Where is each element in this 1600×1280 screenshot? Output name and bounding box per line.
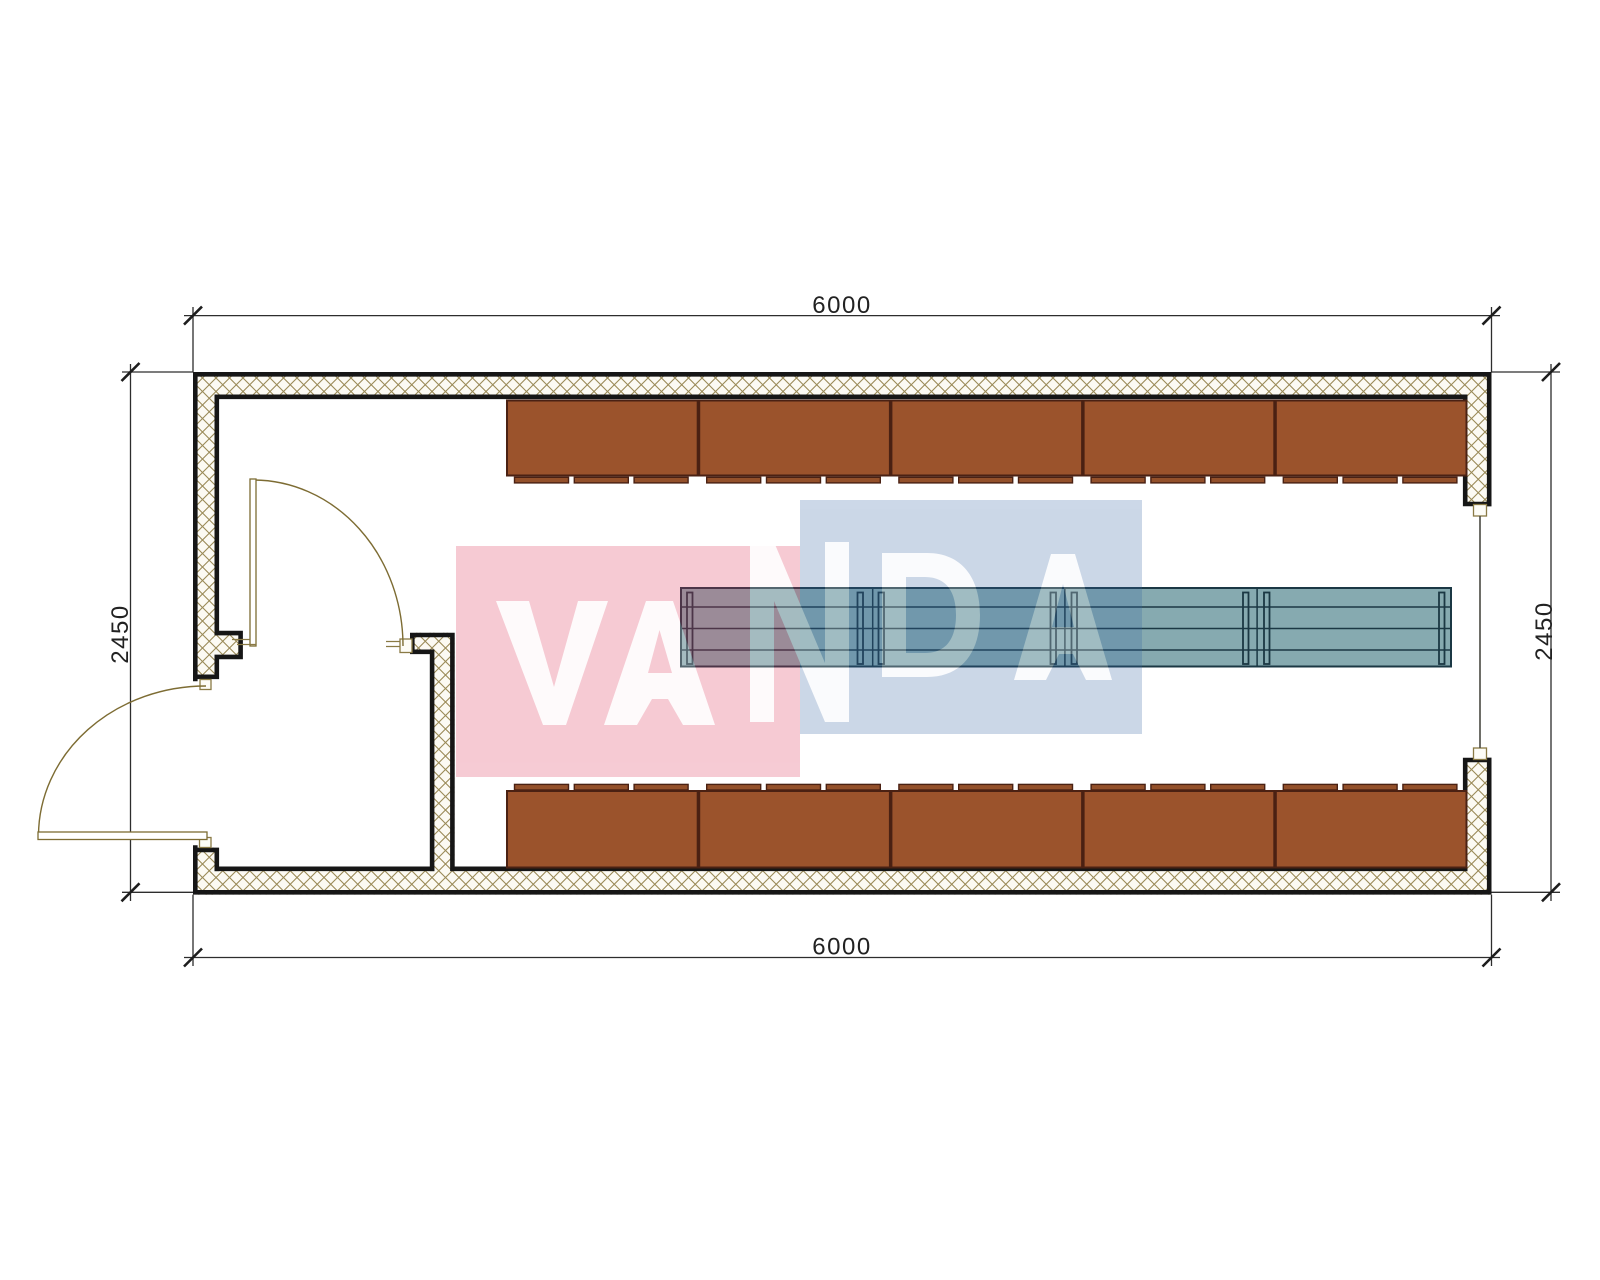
svg-text:2450: 2450 [1531,601,1558,660]
svg-text:2450: 2450 [107,604,134,663]
svg-text:6000: 6000 [812,292,871,319]
svg-text:6000: 6000 [812,934,871,961]
